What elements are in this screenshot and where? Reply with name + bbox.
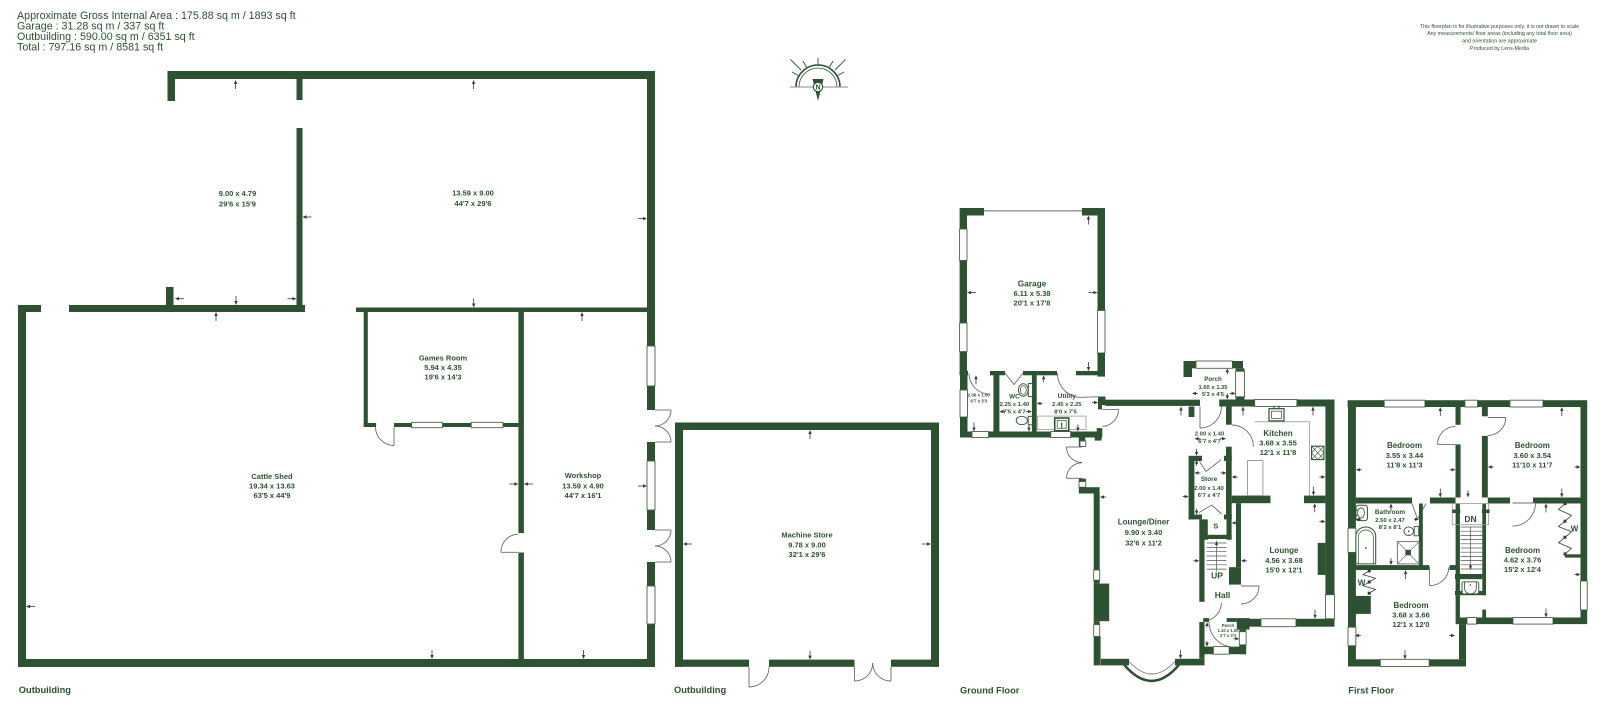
- svg-text:Garage: Garage: [1018, 279, 1047, 289]
- svg-text:6'7 x 4'7: 6'7 x 4'7: [1198, 439, 1221, 445]
- svg-text:W: W: [1571, 525, 1579, 534]
- svg-text:2.00 x 1.40: 2.00 x 1.40: [1195, 432, 1225, 438]
- svg-text:2.25 x 1.40: 2.25 x 1.40: [1000, 402, 1030, 408]
- svg-text:6'7 x 3'3: 6'7 x 3'3: [970, 399, 987, 404]
- svg-text:Ground Floor: Ground Floor: [960, 686, 1020, 696]
- svg-text:Outbuilding: Outbuilding: [674, 685, 726, 695]
- svg-text:2.45 x 2.25: 2.45 x 2.25: [1052, 402, 1082, 408]
- svg-text:This floorplan is for illustra: This floorplan is for illustrative purpo…: [1420, 24, 1579, 30]
- svg-text:2.00 x 1.40: 2.00 x 1.40: [1194, 486, 1224, 492]
- svg-text:W: W: [1358, 579, 1366, 588]
- svg-text:13.59 x 4.90: 13.59 x 4.90: [562, 482, 604, 491]
- svg-text:Outbuilding: Outbuilding: [19, 685, 71, 695]
- svg-text:44'7 x 16'1: 44'7 x 16'1: [565, 491, 602, 500]
- svg-text:9.00 x 4.79: 9.00 x 4.79: [219, 189, 257, 198]
- svg-text:Workshop: Workshop: [565, 471, 602, 480]
- svg-text:Lounge: Lounge: [1270, 546, 1299, 555]
- svg-text:Total : 797.16 sq m / 8581 sq: Total : 797.16 sq m / 8581 sq ft: [17, 42, 163, 54]
- svg-text:15'2 x 12'4: 15'2 x 12'4: [1504, 565, 1542, 574]
- svg-text:UP: UP: [1211, 571, 1223, 581]
- svg-text:Bedroom: Bedroom: [1387, 441, 1422, 450]
- svg-text:5'3 x 4'5: 5'3 x 4'5: [1202, 392, 1225, 398]
- svg-text:Produced by Lens-Media: Produced by Lens-Media: [1470, 46, 1529, 52]
- svg-text:3.68 x 3.66: 3.68 x 3.66: [1392, 611, 1430, 620]
- svg-text:Cattle Shed: Cattle Shed: [251, 472, 293, 481]
- svg-text:12'1 x 11'8: 12'1 x 11'8: [1260, 448, 1297, 457]
- svg-text:Lounge/Diner: Lounge/Diner: [1118, 518, 1170, 527]
- svg-text:and orientation are approximat: and orientation are approximate: [1462, 39, 1537, 45]
- svg-text:6.11 x 5.38: 6.11 x 5.38: [1013, 289, 1050, 298]
- svg-text:11'8 x 11'3: 11'8 x 11'3: [1386, 460, 1422, 469]
- svg-text:12'1 x 12'0: 12'1 x 12'0: [1393, 620, 1430, 629]
- svg-text:2.50 x 2.47: 2.50 x 2.47: [1375, 518, 1405, 524]
- svg-text:32'6 x 11'2: 32'6 x 11'2: [1125, 539, 1162, 548]
- svg-text:19'6 x 14'3: 19'6 x 14'3: [425, 373, 462, 382]
- svg-text:8'0 x 7'5: 8'0 x 7'5: [1054, 410, 1077, 416]
- svg-text:8'2 x 8'1: 8'2 x 8'1: [1379, 525, 1402, 531]
- svg-text:Bedroom: Bedroom: [1393, 601, 1428, 610]
- svg-text:N: N: [815, 85, 820, 92]
- svg-text:Porch: Porch: [1204, 376, 1222, 383]
- svg-text:13.59 x 9.00: 13.59 x 9.00: [452, 189, 494, 198]
- svg-text:Kitchen: Kitchen: [1263, 429, 1292, 438]
- svg-text:Any measurements/ floor areas: Any measurements/ floor areas (including…: [1427, 31, 1572, 37]
- svg-text:Games Room: Games Room: [419, 354, 468, 363]
- svg-text:7'5 x 4'7: 7'5 x 4'7: [1003, 410, 1026, 416]
- svg-text:11'10 x 11'7: 11'10 x 11'7: [1512, 460, 1552, 469]
- svg-text:44'7 x 29'6: 44'7 x 29'6: [455, 199, 492, 208]
- svg-text:First Floor: First Floor: [1348, 686, 1394, 696]
- svg-text:9.78 x 9.00: 9.78 x 9.00: [788, 541, 826, 550]
- svg-text:Bedroom: Bedroom: [1515, 441, 1550, 450]
- svg-text:3.60 x 3.54: 3.60 x 3.54: [1514, 451, 1552, 460]
- svg-text:3.55 x 3.44: 3.55 x 3.44: [1386, 451, 1424, 460]
- svg-text:20'1 x 17'8: 20'1 x 17'8: [1014, 299, 1051, 308]
- svg-text:2.06 x 1.00: 2.06 x 1.00: [968, 393, 991, 398]
- svg-text:Utility: Utility: [1058, 393, 1077, 400]
- svg-text:9.90 x 3.40: 9.90 x 3.40: [1125, 528, 1163, 537]
- svg-text:WC: WC: [1009, 394, 1020, 401]
- svg-text:Machine Store: Machine Store: [781, 531, 832, 540]
- svg-text:63'5 x 44'9: 63'5 x 44'9: [254, 491, 291, 500]
- svg-text:Store: Store: [1201, 476, 1218, 483]
- svg-text:19.34 x 13.63: 19.34 x 13.63: [249, 482, 295, 491]
- svg-text:5.94 x 4.35: 5.94 x 4.35: [424, 363, 462, 372]
- svg-text:3.68 x 3.55: 3.68 x 3.55: [1259, 439, 1297, 448]
- svg-text:4.62 x 3.76: 4.62 x 3.76: [1504, 556, 1542, 565]
- svg-text:DN: DN: [1464, 514, 1476, 524]
- svg-text:2'7 x 3'3: 2'7 x 3'3: [1220, 633, 1237, 638]
- svg-text:6'7 x 4'7: 6'7 x 4'7: [1198, 493, 1221, 499]
- svg-text:Hall: Hall: [1215, 590, 1231, 600]
- svg-text:15'0 x 12'1: 15'0 x 12'1: [1266, 566, 1303, 575]
- svg-text:4.56 x 3.68: 4.56 x 3.68: [1265, 556, 1303, 565]
- svg-text:29'6 x 15'9: 29'6 x 15'9: [219, 200, 256, 209]
- svg-text:32'1 x 29'6: 32'1 x 29'6: [789, 550, 826, 559]
- svg-text:Bathroom: Bathroom: [1375, 509, 1405, 516]
- svg-text:Bedroom: Bedroom: [1505, 546, 1540, 555]
- svg-text:S: S: [1213, 522, 1218, 531]
- svg-text:1.60 x 1.35: 1.60 x 1.35: [1198, 385, 1228, 391]
